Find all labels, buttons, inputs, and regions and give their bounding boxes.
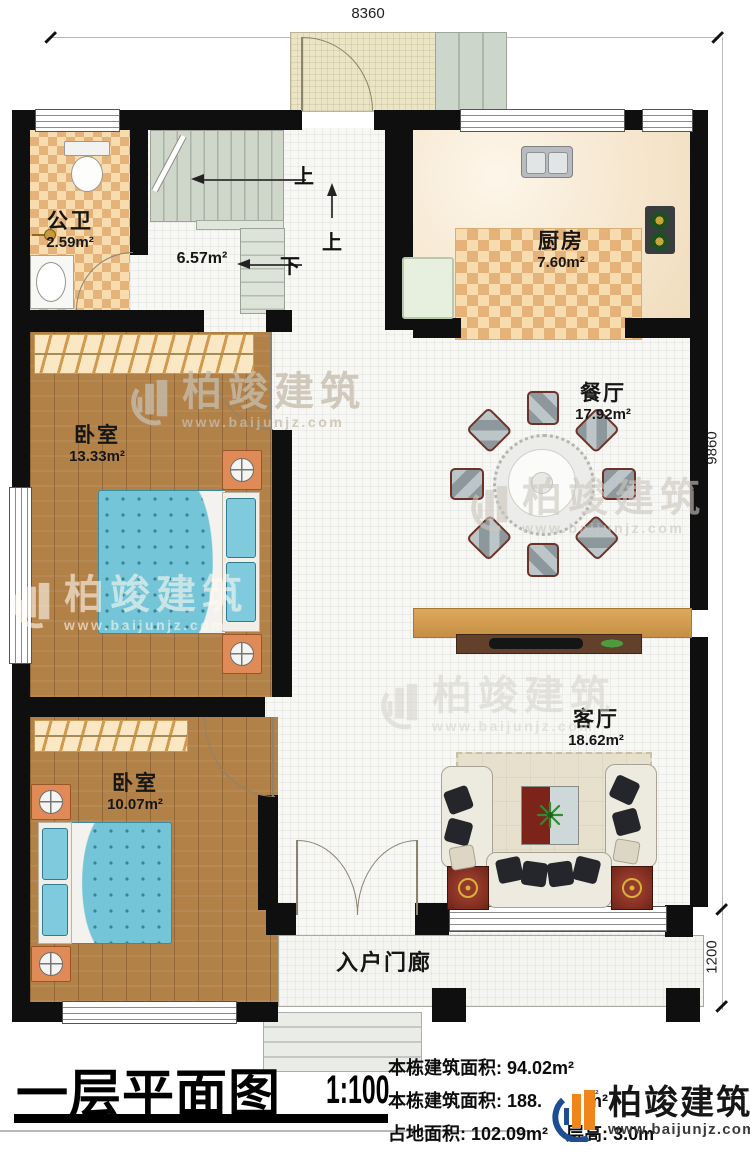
end-table-icon (447, 866, 489, 910)
wall-kitchen-south (625, 318, 690, 338)
nightstand-icon (31, 784, 71, 820)
room-label-bedroom2: 卧室 10.07m² (107, 772, 163, 813)
brand-logo: ² 柏竣建筑 www.baijunjz.com (552, 1086, 750, 1142)
drawing-scale: 1:100 (326, 1068, 389, 1113)
wall (266, 310, 292, 332)
pillow-icon (226, 498, 256, 558)
wall-bathroom (130, 130, 148, 255)
pillow-icon (42, 884, 68, 936)
wall (235, 1002, 278, 1022)
cushion-icon (612, 838, 641, 865)
burner (650, 232, 669, 251)
room-label-stair-hall: 6.57m² (177, 250, 228, 268)
pillow-icon (226, 562, 256, 622)
nightstand-icon (222, 634, 262, 674)
room-label-porch: 入户门廊 (336, 950, 432, 975)
arrow-head-left2 (232, 259, 250, 269)
room-label-bathroom: 公卫 2.59m² (46, 210, 94, 251)
stairs-up-label2: 上 (322, 226, 342, 255)
end-table-icon (611, 866, 653, 910)
wall (374, 110, 460, 130)
medallion (622, 878, 642, 898)
svg-text:²: ² (595, 1089, 599, 1101)
burner (650, 211, 669, 230)
kitchen-sink-icon (521, 146, 573, 178)
toilet-icon (71, 156, 103, 192)
wardrobe-icon (34, 720, 188, 752)
tv-cabinet-icon (456, 634, 642, 654)
pillow-icon (42, 828, 68, 880)
porch-column (432, 988, 466, 1022)
medallion (458, 878, 478, 898)
sink-basin (548, 152, 568, 174)
dimension-right-lower: 1200 (704, 940, 721, 973)
stairs-up-label: 上 (294, 160, 314, 189)
window (460, 109, 625, 132)
wall (12, 310, 204, 332)
wall-stub (415, 903, 449, 935)
stairs-lower-flight (240, 228, 285, 314)
toilet-tank-icon (64, 141, 110, 156)
dimension-line-right (722, 37, 723, 1010)
window (642, 109, 693, 132)
dining-chair (450, 468, 484, 500)
wall-divider (12, 697, 265, 717)
bed-icon (70, 822, 172, 944)
cushion-icon (448, 844, 477, 871)
room-label-dining: 餐厅 17.92m² (575, 382, 631, 423)
cushion-icon (546, 860, 574, 887)
nightstand-icon (222, 450, 262, 490)
cushion-icon (520, 860, 548, 887)
room-label-kitchen: 厨房 7.60m² (537, 230, 585, 271)
sink-icon (36, 262, 66, 302)
window (35, 109, 120, 132)
bed-icon (98, 490, 226, 634)
bed-sheet-fold (71, 823, 109, 943)
lamp-icon (230, 642, 254, 666)
window (9, 487, 32, 664)
plant-icon (535, 800, 565, 830)
wall (12, 1002, 62, 1022)
wall (12, 130, 30, 487)
wall (690, 130, 708, 610)
dining-chair (527, 391, 559, 425)
wardrobe-icon (34, 334, 254, 374)
wall-bedroom2 (258, 795, 278, 910)
dimension-top: 8360 (351, 5, 384, 22)
lamp-icon (230, 458, 254, 482)
floor-plan: 8360 9860 1200 上 上 下 (0, 0, 750, 1165)
wall (118, 110, 302, 130)
lamp-icon (39, 790, 63, 814)
window (62, 1001, 237, 1024)
room-label-bedroom1: 卧室 13.33m² (69, 424, 125, 465)
arrow-head-left (186, 174, 204, 184)
cushion-icon (495, 856, 524, 885)
tv-icon (489, 638, 583, 649)
wall (623, 110, 642, 130)
lamp-icon (39, 952, 63, 976)
title-underline (14, 1114, 388, 1123)
porch-column (666, 988, 700, 1022)
wall (12, 110, 35, 130)
baijun-logo-icon: ² (552, 1086, 602, 1142)
dining-chair (602, 468, 636, 500)
wall-bedroom1 (272, 430, 292, 697)
stairs-upper-flight (150, 130, 284, 222)
stairs-down-label: 下 (280, 250, 300, 279)
room-label-living: 客厅 18.62m² (568, 708, 624, 749)
brand-text: 柏竣建筑 www.baijunjz.com (608, 1086, 750, 1138)
fridge-icon (402, 257, 454, 319)
back-steps (435, 32, 507, 112)
wall (690, 637, 708, 907)
wall-kitchen-south (413, 318, 461, 338)
wall (691, 110, 708, 130)
coffee-table-icon (521, 786, 579, 845)
dining-chair (527, 543, 559, 577)
arrow-head-up (327, 178, 337, 196)
nightstand-icon (31, 946, 71, 982)
sink-basin (526, 152, 546, 174)
stairs-up-arrow-line (198, 179, 306, 181)
stove-icon (645, 206, 675, 254)
plant-decor-icon (599, 639, 625, 648)
wall-pillar (665, 905, 693, 937)
lazy-susan (531, 472, 553, 494)
stat-building-area-1: 本栋建筑面积: 94.02m² (388, 1054, 574, 1080)
bed-sheet-fold (183, 491, 225, 633)
